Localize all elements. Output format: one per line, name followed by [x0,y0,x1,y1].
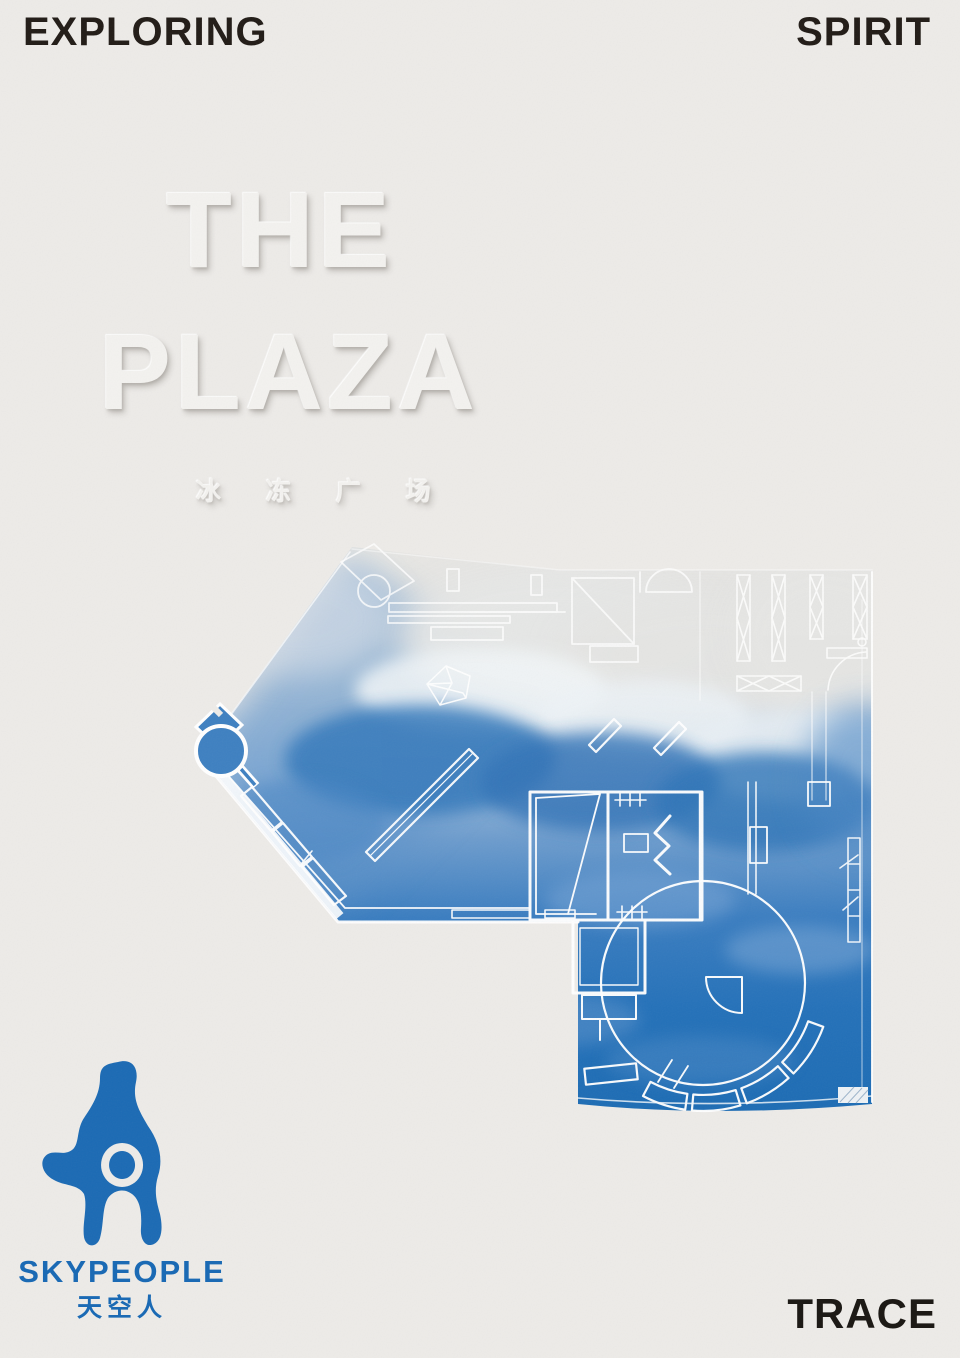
paper-texture [0,0,960,1358]
poster-canvas: EXPLORING SPIRIT THE PLAZA 冰 冻 广 场 [0,0,960,1358]
logo-wordmark-chinese: 天空人 [77,1288,167,1324]
logo-wordmark: SKYPEOPLE [18,1254,226,1290]
footer-right-label: TRACE [787,1290,937,1338]
floor-plan-graphic [0,0,960,1358]
